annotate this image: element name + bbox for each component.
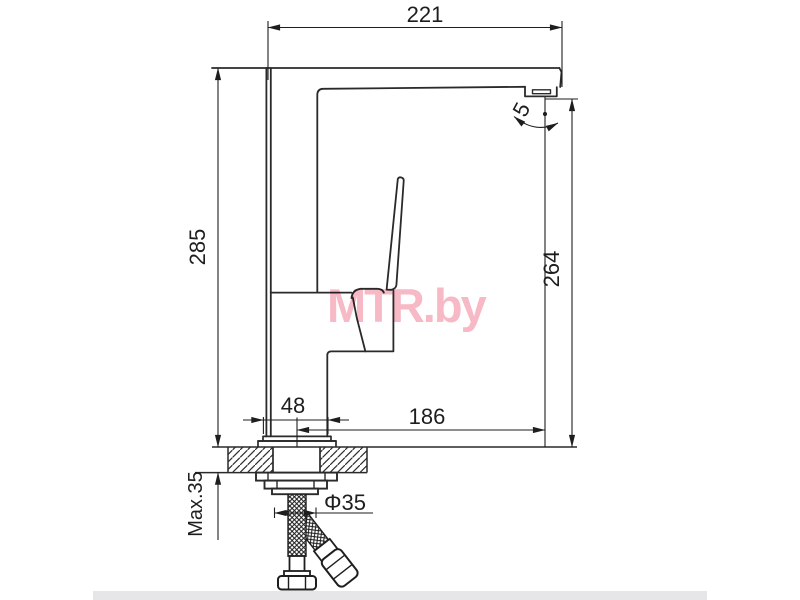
dim-48 [243, 417, 349, 434]
countertop-hatch-right [320, 447, 367, 473]
mounting-nut [265, 481, 328, 489]
label-hole-diameter: Φ35 [324, 490, 366, 515]
countertop-hatch-left [228, 447, 273, 473]
hose-straight-collar [290, 556, 305, 572]
hose-straight-nut [278, 576, 316, 590]
angle-vertex-dot [543, 112, 547, 116]
countertop-section [195, 447, 577, 473]
hose-straight-braid [288, 494, 306, 556]
watermark-text: MTR.by [327, 282, 485, 329]
label-outlet-angle: 5 [507, 98, 535, 121]
spout-tip-face [559, 68, 561, 87]
label-body-width: 48 [281, 393, 305, 418]
label-total-height: 285 [185, 229, 210, 266]
label-outlet-height: 264 [539, 251, 564, 288]
aerator [525, 87, 557, 97]
handle-lever [387, 177, 404, 290]
faucet-outline [212, 68, 562, 447]
spout-underside [317, 87, 525, 293]
label-spout-reach: 186 [409, 404, 446, 429]
dim-221-extension-lines [268, 21, 562, 87]
label-max-thickness: Max.35 [185, 471, 207, 537]
angle-arc [514, 117, 558, 128]
label-spout-width: 221 [407, 2, 444, 27]
shank-collar [272, 489, 318, 495]
mounting-hole-edges [273, 447, 320, 473]
dim-221 [268, 21, 562, 87]
footer-strip [93, 591, 707, 600]
